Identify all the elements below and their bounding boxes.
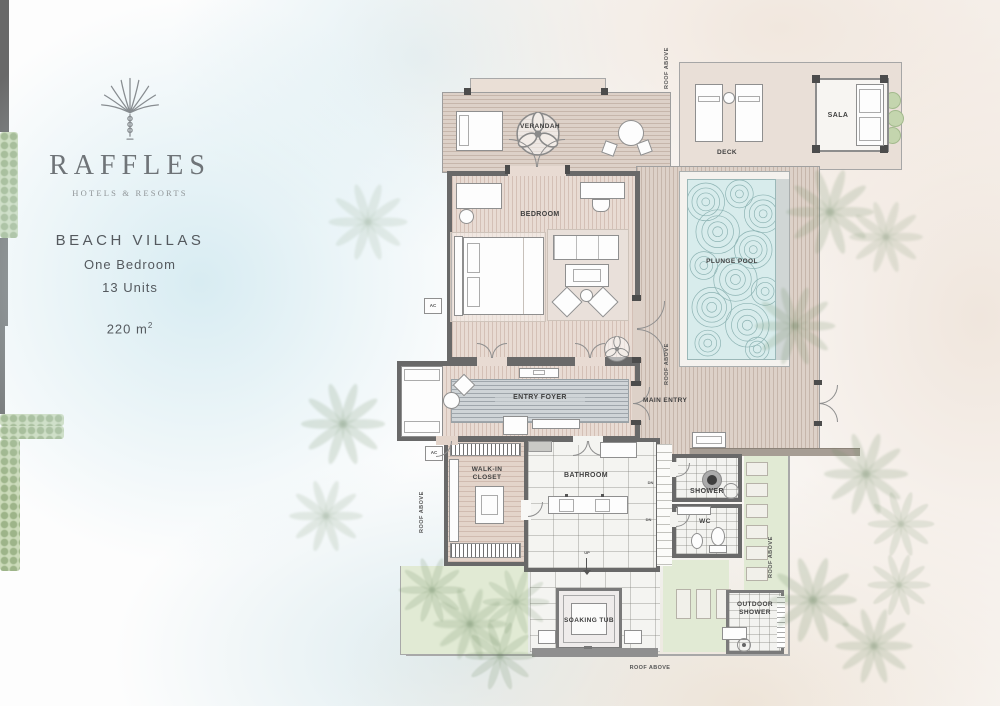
sun-lounger: [735, 84, 763, 142]
deck-label: DECK: [707, 149, 747, 157]
bedroom-count-line: One Bedroom: [28, 257, 232, 272]
faucet: [601, 494, 604, 497]
roof-above-annotation: ROOF ABOVE: [664, 338, 677, 390]
outdoor-shower-fixture: [742, 643, 746, 647]
planter: [538, 630, 556, 644]
pool-ripples-icon: [688, 180, 775, 359]
faucet: [565, 494, 568, 497]
bed-headboard: [454, 236, 463, 316]
door-frame-post: [631, 420, 641, 425]
door-frame-post: [565, 165, 570, 174]
dn-annotation: DN: [642, 517, 655, 522]
lounger-headrest: [698, 96, 720, 102]
tub-spout: [584, 646, 592, 649]
soaking-tub-label: SOAKING TUB: [556, 617, 622, 625]
verandah-label: VERANDAH: [505, 123, 575, 131]
door-opening: [508, 166, 566, 176]
sala-post: [812, 145, 820, 153]
closet-rack: [450, 443, 521, 456]
bed-fold-line: [523, 238, 524, 314]
entry-foyer-label: ENTRY FOYER: [495, 394, 585, 403]
raffles-palm-logo-icon: [91, 56, 169, 144]
pool-infinity-edge: [776, 179, 789, 360]
sofa: [553, 235, 619, 260]
roof-above-annotation: ROOF ABOVE: [600, 665, 700, 672]
bedroom-label: BEDROOM: [505, 211, 575, 220]
main-entry-label: MAIN ENTRY: [643, 397, 703, 405]
wc-label: WC: [692, 518, 718, 526]
sun-lounger: [695, 84, 723, 142]
lounger-headrest: [738, 96, 760, 102]
shrub: [887, 110, 904, 127]
luggage-bench: [503, 416, 528, 435]
vanity-sink: [559, 499, 574, 512]
low-console: [532, 419, 580, 429]
ac-annotation: AC: [424, 303, 442, 308]
verandah-daybed-pillow: [459, 115, 469, 146]
door-opening: [575, 357, 605, 366]
verandah-roof-notch: [470, 78, 606, 93]
up-arrow-line: [586, 558, 587, 570]
desk-chair: [592, 199, 610, 212]
area-value: 220 m: [107, 321, 148, 336]
stepping-stone: [746, 504, 768, 518]
brand-name: RAFFLES: [28, 150, 232, 182]
bed-pillow: [467, 277, 480, 307]
side-table: [580, 289, 593, 302]
door-opening: [477, 357, 507, 366]
bathroom-label: BATHROOM: [551, 472, 621, 481]
up-arrow-head-icon: [583, 570, 591, 575]
area-superscript: 2: [148, 321, 153, 330]
entry-bench-seat: [696, 436, 722, 444]
door-frame-post: [505, 165, 510, 174]
side-garden: [400, 566, 528, 655]
stepping-stone: [676, 589, 691, 619]
daybed-pillow: [404, 421, 440, 433]
door-frame-post: [631, 381, 641, 386]
desk-stool: [459, 209, 474, 224]
brand-tagline: HOTELS & RESORTS: [28, 188, 232, 198]
shower-label: SHOWER: [684, 488, 730, 497]
gate-post: [814, 421, 822, 426]
closet-rack: [450, 543, 521, 558]
daybed-pillow: [404, 369, 440, 381]
bidet: [691, 533, 703, 549]
stepping-stone: [746, 525, 768, 539]
roof-above-annotation: ROOF ABOVE: [768, 528, 781, 586]
closet-island-tray: [481, 495, 498, 515]
info-panel: RAFFLES HOTELS & RESORTS BEACH VILLAS On…: [28, 56, 232, 336]
ac-annotation: AC: [425, 450, 443, 455]
bathroom-cabinet: [528, 441, 552, 452]
pouf: [443, 392, 460, 409]
dressing-desk: [580, 182, 625, 199]
door-frame-post: [632, 295, 641, 301]
stepping-stone: [746, 462, 768, 476]
door-frame-post: [632, 357, 641, 363]
stepping-stone: [746, 483, 768, 497]
sala-post: [880, 75, 888, 83]
walk-in-closet-label: WALK-IN CLOSET: [458, 466, 516, 482]
bathroom-bench: [600, 442, 637, 458]
sala-pillow: [859, 117, 881, 141]
plunge-pool-label: PLUNGE POOL: [703, 258, 761, 266]
roof-above-annotation: ROOF ABOVE: [419, 484, 432, 540]
dn-annotation: DN: [644, 480, 657, 485]
up-annotation: UP: [579, 550, 595, 555]
unit-count-line: 13 Units: [28, 280, 232, 295]
sala-post: [880, 145, 888, 153]
toilet-tank: [709, 545, 727, 553]
rain-shower-center: [707, 475, 717, 485]
boundary-line: [788, 456, 790, 655]
wc-shelf: [677, 506, 711, 515]
outdoor-shower-label: OUTDOOR SHOWER: [733, 601, 777, 617]
ceiling-fan-icon: [604, 336, 630, 362]
vanity-sink: [595, 499, 610, 512]
area-line: 220 m2: [28, 321, 232, 336]
outdoor-shower-room: [726, 590, 784, 654]
courtyard-steps: [532, 648, 658, 657]
toilet: [711, 527, 725, 546]
planter: [624, 630, 642, 644]
gate-post: [814, 380, 822, 385]
roof-above-annotation: ROOF ABOVE: [664, 42, 677, 94]
stepping-stone: [696, 589, 711, 619]
verandah-post: [601, 88, 608, 95]
sala-post: [812, 75, 820, 83]
console-item: [533, 370, 545, 375]
stepping-stone: [746, 567, 768, 581]
deck-side-table: [723, 92, 735, 104]
plunge-pool-water: [687, 179, 776, 360]
coffee-table-tray: [573, 269, 601, 282]
outdoor-shower-screen: [777, 596, 785, 648]
sala-label: SALA: [820, 112, 856, 121]
sala-pillow: [859, 89, 881, 113]
writing-desk: [456, 183, 502, 209]
villa-type-heading: BEACH VILLAS: [28, 232, 232, 249]
stepping-stone: [746, 546, 768, 560]
floor-plan-sheet: RAFFLES HOTELS & RESORTS BEACH VILLAS On…: [0, 0, 1000, 706]
verandah-post: [464, 88, 471, 95]
bed-pillow: [467, 243, 480, 273]
